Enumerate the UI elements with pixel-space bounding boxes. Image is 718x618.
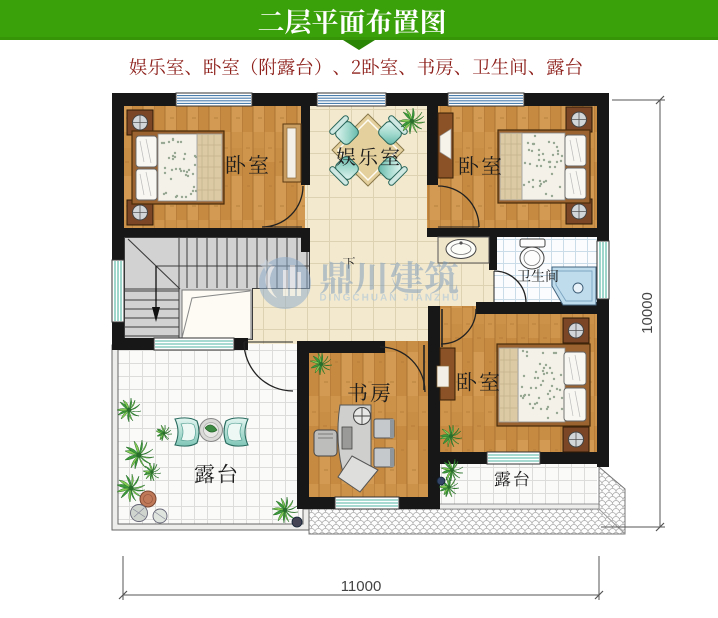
- svg-text:11000: 11000: [341, 578, 382, 595]
- svg-text:10000: 10000: [639, 292, 656, 334]
